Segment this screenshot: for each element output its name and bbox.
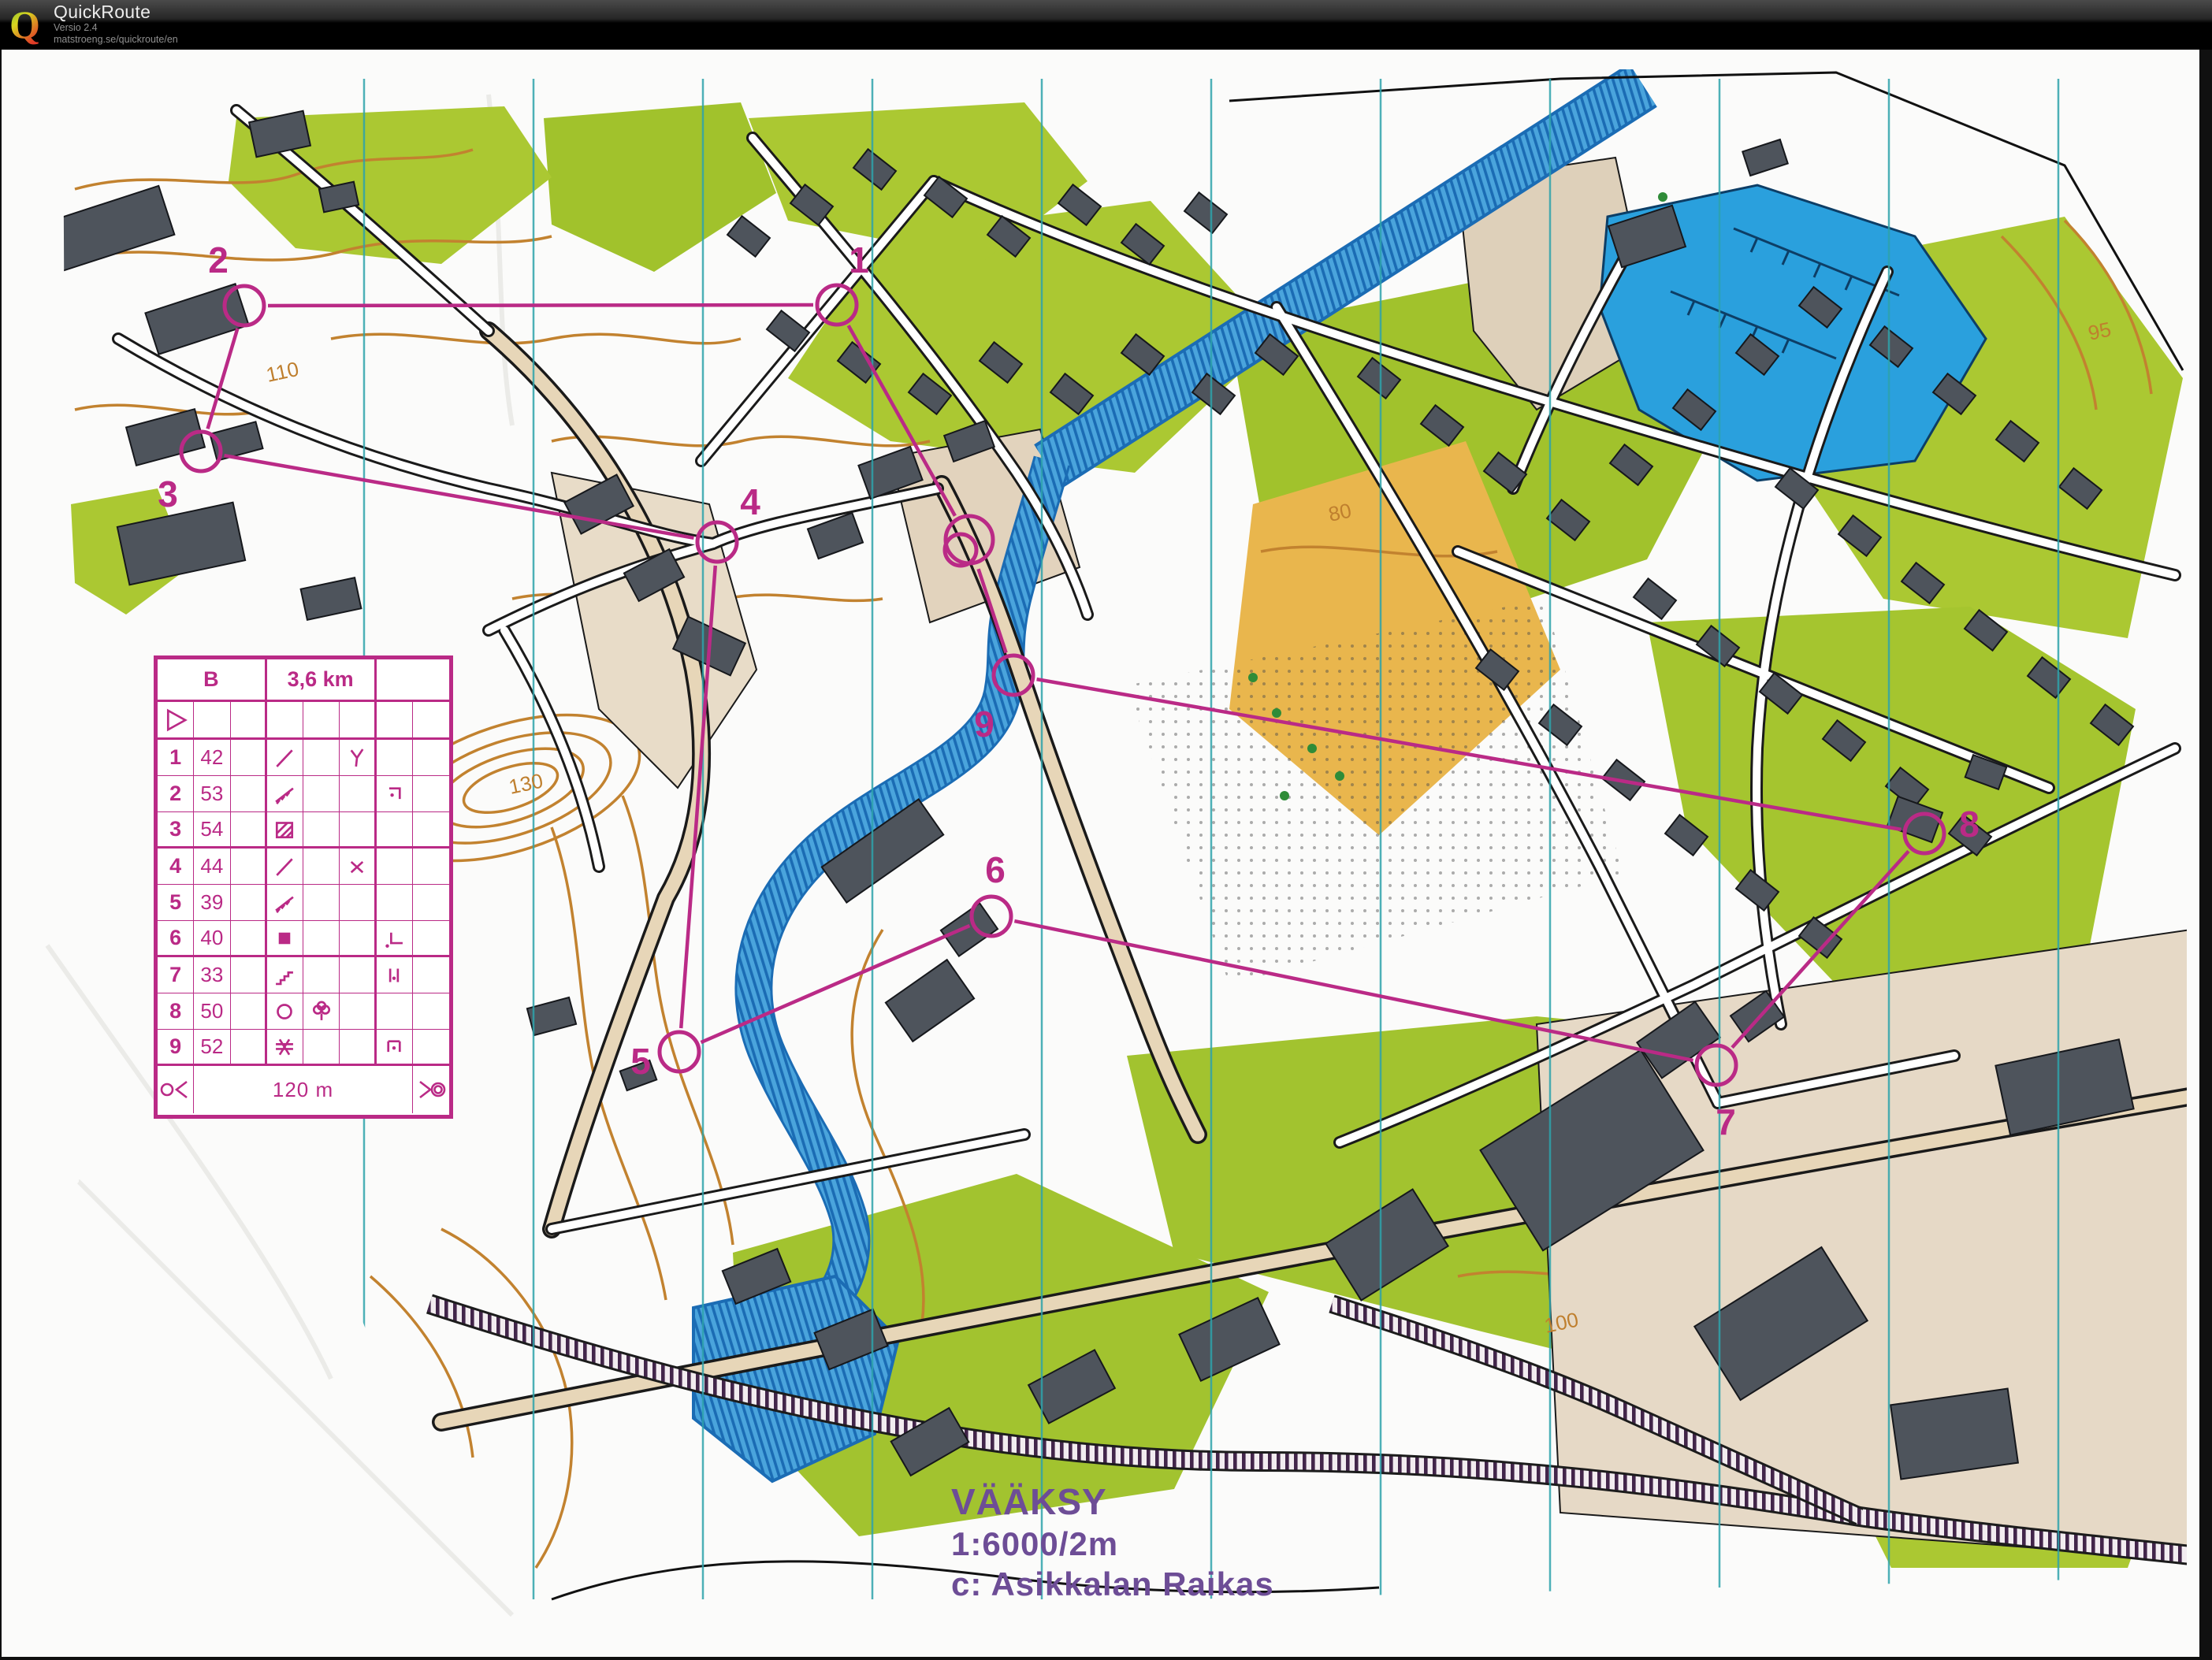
symbol-cell xyxy=(377,1030,413,1066)
card-cell xyxy=(231,740,267,776)
contour-label: 80 xyxy=(1326,499,1354,526)
building xyxy=(1634,578,1676,618)
map-attribution: c: Asikkalan Raikas xyxy=(951,1564,1274,1604)
card-course-length: 3,6 km xyxy=(267,659,377,702)
card-cell xyxy=(413,885,449,921)
contour-label: 130 xyxy=(507,769,545,799)
card-cell xyxy=(303,776,340,812)
card-footer-left xyxy=(158,1066,194,1113)
cross-symbol-icon xyxy=(344,853,370,880)
control-number-label: 5 xyxy=(630,1041,651,1082)
filled-square-symbol-icon xyxy=(271,925,298,952)
symbol-cell xyxy=(267,993,303,1030)
control-number-cell: 4 xyxy=(158,849,194,885)
card-cell xyxy=(231,776,267,812)
slope-symbol-icon xyxy=(271,745,298,771)
control-number-label: 9 xyxy=(974,704,994,745)
finish-distance-cell: 120 m xyxy=(194,1066,413,1113)
card-cell xyxy=(303,921,340,957)
card-footer-right xyxy=(413,1066,449,1113)
building xyxy=(1184,192,1227,232)
card-cell xyxy=(377,812,413,849)
symbol-cell xyxy=(267,885,303,921)
card-cell xyxy=(340,885,376,921)
control-number-cell: 1 xyxy=(158,740,194,776)
building xyxy=(126,409,205,466)
finish-chute-left-icon xyxy=(160,1078,191,1101)
angle-dot-symbol-icon xyxy=(381,925,407,952)
card-cell xyxy=(340,1030,376,1066)
card-cell xyxy=(340,993,376,1030)
app-title: QuickRoute xyxy=(54,2,178,21)
building xyxy=(727,216,770,256)
card-cell xyxy=(413,921,449,957)
semi-open-dotted-area xyxy=(1127,599,1623,985)
earth-bank-symbol-icon xyxy=(271,889,298,916)
symbol-cell xyxy=(267,849,303,885)
control-number-label: 7 xyxy=(1716,1101,1736,1142)
symbol-cell xyxy=(340,740,376,776)
symbol-cell xyxy=(377,957,413,993)
control-number-label: 1 xyxy=(849,240,869,280)
card-header-blank xyxy=(377,659,450,702)
control-number-cell: 3 xyxy=(158,812,194,849)
card-cell xyxy=(340,702,376,740)
building xyxy=(46,186,175,271)
building xyxy=(886,960,974,1042)
control-code-cell: 52 xyxy=(194,1030,230,1066)
control-number-cell: 5 xyxy=(158,885,194,921)
map-title-block: VÄÄKSY 1:6000/2m c: Asikkalan Raikas xyxy=(951,1480,1274,1605)
symbol-cell xyxy=(303,993,340,1030)
control-number-label: 6 xyxy=(985,849,1006,890)
control-number-label: 2 xyxy=(208,240,229,280)
card-cell xyxy=(231,849,267,885)
card-cell xyxy=(377,885,413,921)
symbol-cell xyxy=(377,921,413,957)
card-cell xyxy=(413,957,449,993)
control-code-cell: 50 xyxy=(194,993,230,1030)
control-code-cell: 40 xyxy=(194,921,230,957)
card-cell xyxy=(231,812,267,849)
scanned-map-paper[interactable]: 1101309510080 123456789 B3,6 km142253354… xyxy=(2,50,2199,1657)
card-cell xyxy=(231,921,267,957)
control-description-card: B3,6 km142253354444539640733850952120 m xyxy=(154,655,453,1119)
fork-symbol-icon xyxy=(344,745,370,771)
control-number-cell: 9 xyxy=(158,1030,194,1066)
card-cell xyxy=(303,957,340,993)
app-version: Versio 2.4 xyxy=(54,23,178,33)
finish-chute-right-icon xyxy=(415,1078,447,1101)
control-code-cell: 44 xyxy=(194,849,230,885)
card-cell xyxy=(303,1030,340,1066)
control-number-label: 3 xyxy=(158,473,178,514)
ring-symbol-icon xyxy=(271,998,298,1025)
control-code-cell: 42 xyxy=(194,740,230,776)
card-cell xyxy=(303,702,340,740)
card-cell xyxy=(194,702,230,740)
card-cell xyxy=(303,849,340,885)
app-url[interactable]: matstroeng.se/quickroute/en xyxy=(54,35,178,45)
between-dot-symbol-icon xyxy=(381,962,407,989)
slope-symbol-icon xyxy=(271,853,298,880)
control-number-cell: 6 xyxy=(158,921,194,957)
bend-dot-symbol-icon xyxy=(381,781,407,808)
control-number-cell: 7 xyxy=(158,957,194,993)
control-number-cell: 2 xyxy=(158,776,194,812)
card-cell xyxy=(303,740,340,776)
card-cell xyxy=(231,885,267,921)
contour-label: 95 xyxy=(2086,318,2113,345)
earth-bank-symbol-icon xyxy=(271,781,298,808)
logo-q-letter: Q xyxy=(9,3,40,46)
symbol-cell xyxy=(267,1030,303,1066)
symbol-cell xyxy=(267,812,303,849)
card-cell xyxy=(303,812,340,849)
card-cell xyxy=(413,702,449,740)
building xyxy=(301,577,362,620)
control-number-label: 8 xyxy=(1959,804,1980,845)
card-cell xyxy=(377,993,413,1030)
symbol-cell xyxy=(377,776,413,812)
symbol-cell xyxy=(267,776,303,812)
app-header: Q QuickRoute Versio 2.4 matstroeng.se/qu… xyxy=(0,0,2212,50)
building xyxy=(1890,1389,2018,1480)
start-triangle-cell xyxy=(158,702,194,740)
card-cell xyxy=(413,849,449,885)
card-cell xyxy=(267,702,303,740)
bush-symbol-icon xyxy=(308,998,335,1025)
card-cell xyxy=(413,776,449,812)
card-cell xyxy=(413,1030,449,1066)
square-dot-symbol-icon xyxy=(381,1034,407,1060)
control-number-cell: 8 xyxy=(158,993,194,1030)
card-cell xyxy=(340,957,376,993)
card-cell xyxy=(413,812,449,849)
map-scale: 1:6000/2m xyxy=(951,1524,1274,1564)
control-code-cell: 33 xyxy=(194,957,230,993)
card-cell xyxy=(377,702,413,740)
quickroute-logo: Q xyxy=(8,3,46,47)
symbol-cell xyxy=(267,957,303,993)
symbol-cell xyxy=(267,921,303,957)
control-number-label: 4 xyxy=(740,481,760,522)
card-cell xyxy=(231,1030,267,1066)
building xyxy=(941,903,998,956)
control-code-cell: 53 xyxy=(194,776,230,812)
contour-label: 110 xyxy=(264,357,301,387)
card-cell xyxy=(340,921,376,957)
course-leg-line xyxy=(268,305,813,306)
card-cell xyxy=(413,740,449,776)
card-cell xyxy=(231,957,267,993)
symbol-cell xyxy=(267,740,303,776)
stairs-symbol-icon xyxy=(271,962,298,989)
card-cell xyxy=(340,812,376,849)
card-cell xyxy=(231,993,267,1030)
hatched-square-symbol-icon xyxy=(271,816,298,843)
card-cell xyxy=(303,885,340,921)
building xyxy=(1742,139,1787,176)
start-triangle-symbol-icon xyxy=(162,707,189,733)
map-title: VÄÄKSY xyxy=(951,1480,1274,1524)
card-cell xyxy=(413,993,449,1030)
control-circle[interactable] xyxy=(660,1032,699,1071)
control-code-cell: 54 xyxy=(194,812,230,849)
card-cell xyxy=(231,702,267,740)
crossing-symbol-icon xyxy=(271,1034,298,1060)
card-cell xyxy=(340,776,376,812)
control-code-cell: 39 xyxy=(194,885,230,921)
quickroute-window: { "app": { "name": "QuickRoute", "versio… xyxy=(0,0,2212,1660)
card-cell xyxy=(377,740,413,776)
symbol-cell xyxy=(340,849,376,885)
card-course-label: B xyxy=(158,659,267,702)
card-cell xyxy=(377,849,413,885)
